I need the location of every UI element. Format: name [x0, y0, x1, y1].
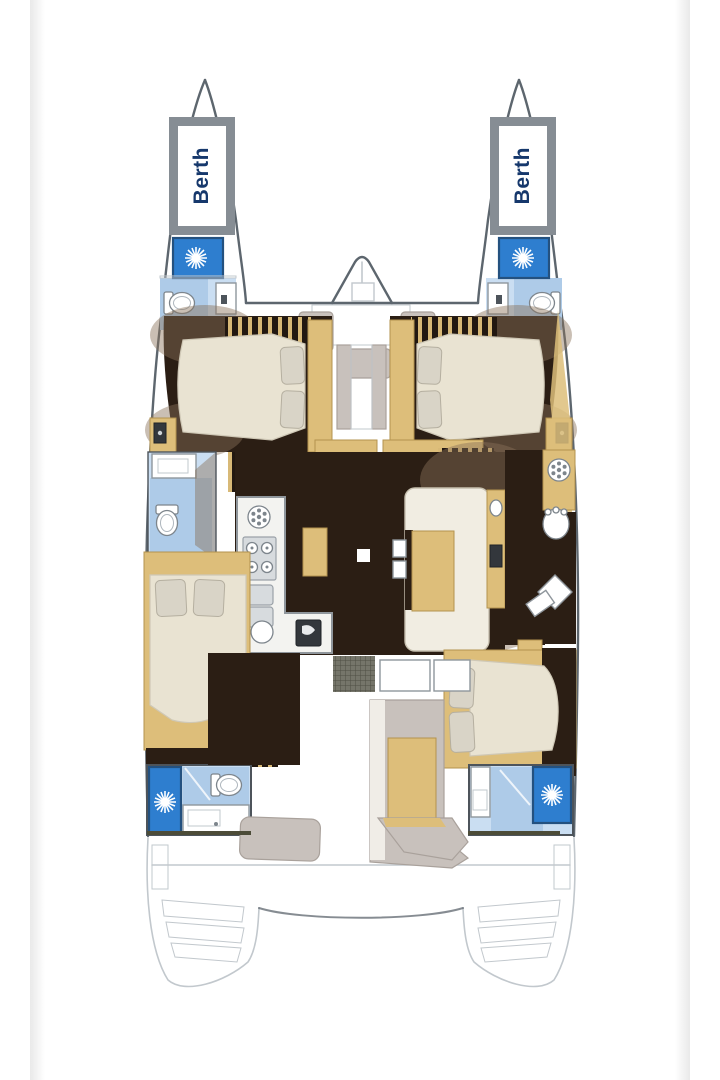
starboard-aft-head — [469, 765, 573, 835]
cockpit-grate — [333, 656, 375, 692]
port-berth-label: Berth — [190, 147, 214, 204]
cockpit-seat-port — [239, 817, 320, 862]
port-forward-cabin — [145, 305, 332, 458]
aft-transom-outlines — [147, 838, 575, 987]
hatch-wheel-icon — [248, 506, 270, 528]
washbasin-icon — [543, 507, 569, 539]
catamaran-floorplan — [0, 0, 720, 1080]
starboard-berth-label: Berth — [511, 147, 535, 204]
starboard-berth-label-box: Berth — [490, 117, 556, 235]
fridge-icon — [296, 620, 321, 646]
cockpit-table — [388, 738, 436, 826]
salon-table — [412, 531, 454, 611]
port-berth-label-box: Berth — [169, 117, 235, 235]
deck-plan-page: Berth Berth — [0, 0, 720, 1080]
port-aft-head — [147, 765, 251, 835]
round-sink-icon — [251, 621, 273, 643]
port-mid-head — [148, 452, 216, 560]
salon-dinette — [393, 488, 505, 651]
